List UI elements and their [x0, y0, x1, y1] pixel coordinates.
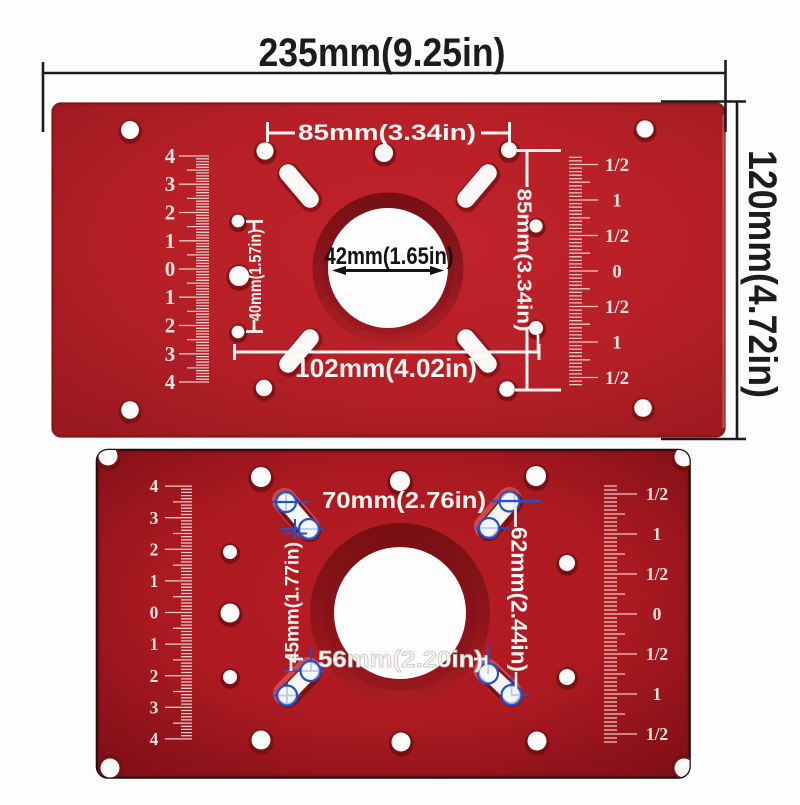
- svg-text:1: 1: [165, 229, 176, 253]
- svg-text:120mm(4.72in): 120mm(4.72in): [740, 150, 784, 398]
- svg-text:42mm(1.65in): 42mm(1.65in): [325, 243, 454, 270]
- svg-text:3: 3: [165, 342, 176, 366]
- svg-text:1/2: 1/2: [646, 644, 668, 664]
- svg-text:1: 1: [150, 634, 159, 654]
- svg-text:2: 2: [150, 539, 159, 559]
- svg-text:0: 0: [150, 603, 159, 623]
- svg-text:45mm(1.77in): 45mm(1.77in): [282, 542, 304, 663]
- svg-text:3: 3: [150, 508, 159, 528]
- svg-text:70mm(2.76in): 70mm(2.76in): [322, 487, 486, 513]
- svg-text:1/2: 1/2: [646, 564, 668, 584]
- svg-text:1: 1: [653, 524, 662, 544]
- svg-text:56mm(2.20in): 56mm(2.20in): [318, 646, 483, 672]
- svg-text:1: 1: [612, 191, 622, 212]
- svg-text:1/2: 1/2: [646, 484, 668, 504]
- svg-text:4: 4: [165, 144, 176, 168]
- svg-text:1/2: 1/2: [605, 297, 629, 318]
- svg-text:102mm(4.02in): 102mm(4.02in): [295, 353, 477, 383]
- svg-text:62mm(2.44in): 62mm(2.44in): [507, 527, 532, 672]
- svg-text:40mm(1.57in): 40mm(1.57in): [245, 229, 265, 321]
- svg-text:3: 3: [165, 172, 176, 196]
- svg-text:2: 2: [150, 666, 159, 686]
- svg-text:235mm(9.25in): 235mm(9.25in): [259, 31, 506, 75]
- svg-text:1: 1: [612, 333, 622, 354]
- svg-text:1/2: 1/2: [646, 724, 668, 744]
- svg-text:2: 2: [165, 201, 176, 225]
- svg-text:4: 4: [150, 729, 159, 749]
- svg-text:1: 1: [165, 285, 176, 309]
- svg-text:4: 4: [150, 476, 159, 496]
- svg-text:85mm(3.34in): 85mm(3.34in): [298, 120, 476, 145]
- svg-text:0: 0: [165, 257, 176, 281]
- svg-text:3: 3: [150, 697, 159, 717]
- svg-text:1: 1: [150, 571, 159, 591]
- svg-text:1/2: 1/2: [605, 368, 629, 389]
- svg-text:2: 2: [165, 314, 176, 338]
- svg-text:0: 0: [653, 604, 662, 624]
- svg-text:0: 0: [612, 262, 622, 283]
- svg-text:1: 1: [653, 684, 662, 704]
- svg-text:85mm(3.34in): 85mm(3.34in): [513, 189, 536, 332]
- svg-text:1/2: 1/2: [605, 155, 629, 176]
- svg-text:4: 4: [165, 370, 176, 394]
- svg-text:1/2: 1/2: [605, 226, 629, 247]
